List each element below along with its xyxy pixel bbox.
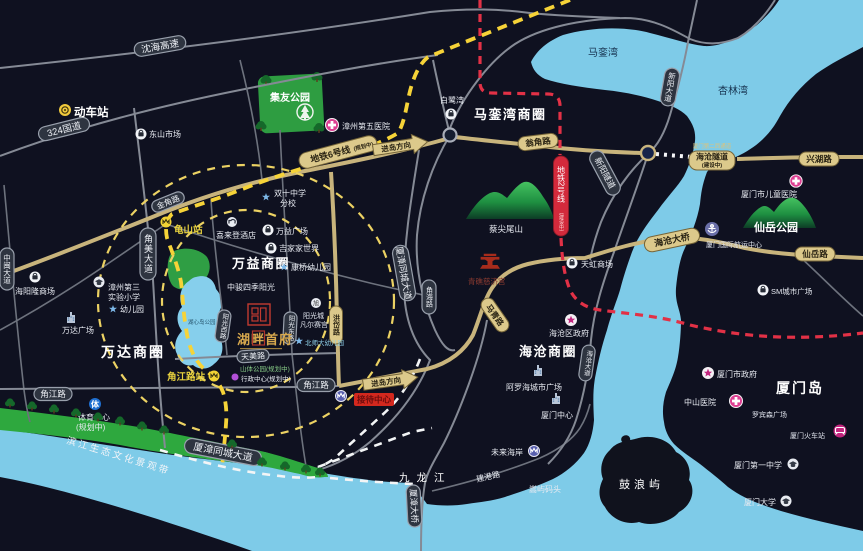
svg-text:厦门中心: 厦门中心: [541, 410, 573, 420]
svg-text:角美大道: 角美大道: [143, 233, 153, 274]
svg-text:漳州第三: 漳州第三: [108, 282, 140, 292]
svg-text:接待中心: 接待中心: [357, 395, 392, 405]
svg-text:厦门国际航运中心: 厦门国际航运中心: [706, 240, 762, 249]
svg-text:厦门火车站: 厦门火车站: [790, 431, 825, 440]
svg-text:厦漳大桥: 厦漳大桥: [408, 489, 420, 524]
svg-text:嵩屿码头: 嵩屿码头: [529, 484, 561, 494]
svg-text:东山市场: 东山市场: [149, 129, 181, 139]
svg-text:马銮湾: 马銮湾: [588, 46, 618, 59]
svg-text:罗宾森广场: 罗宾森广场: [752, 410, 787, 419]
svg-text:龟山站: 龟山站: [174, 224, 203, 236]
svg-text:阳光城: 阳光城: [303, 311, 324, 320]
svg-text:阿罗海城市广场: 阿罗海城市广场: [506, 382, 562, 392]
svg-text:厦门第二西通道: 厦门第二西通道: [693, 142, 732, 150]
svg-text:北师大幼儿园: 北师大幼儿园: [305, 338, 344, 347]
svg-text:角海路: 角海路: [426, 286, 434, 309]
svg-text:未来海岸: 未来海岸: [491, 447, 523, 457]
svg-text:旭: 旭: [313, 300, 319, 308]
svg-text:角江路: 角江路: [303, 380, 329, 390]
svg-text:仙岳路: 仙岳路: [802, 249, 828, 259]
svg-text:集友公园: 集友公园: [269, 91, 310, 104]
svg-text:康桥幼儿园: 康桥幼儿园: [291, 262, 331, 272]
svg-text:行政中心(规划中): 行政中心(规划中): [241, 374, 291, 383]
svg-text:分校: 分校: [280, 198, 296, 208]
svg-text:双十中学: 双十中学: [274, 188, 306, 198]
svg-text:中骏四季阳光: 中骏四季阳光: [227, 282, 275, 292]
svg-text:兴湖路: 兴湖路: [806, 154, 832, 164]
svg-text:角江路站: 角江路站: [167, 371, 206, 383]
svg-text:喜来登酒店: 喜来登酒店: [216, 230, 256, 240]
svg-text:厦门市儿童医院: 厦门市儿童医院: [741, 189, 797, 199]
svg-text:万益广场: 万益广场: [276, 226, 308, 236]
svg-text:动车站: 动车站: [74, 105, 109, 119]
svg-text:海沧商圈: 海沧商圈: [519, 344, 577, 359]
svg-text:吉家家世界: 吉家家世界: [279, 243, 319, 253]
svg-text:万达商圈: 万达商圈: [100, 344, 165, 360]
svg-text:厦门大学: 厦门大学: [744, 497, 776, 507]
svg-text:仙岳公园: 仙岳公园: [754, 220, 798, 234]
svg-text:蔡尖尾山: 蔡尖尾山: [489, 224, 523, 234]
svg-text:体: 体: [91, 399, 100, 409]
svg-text:九龙江: 九龙江: [399, 471, 452, 484]
svg-text:角江路: 角江路: [40, 389, 66, 399]
svg-text:青礁慈济宫: 青礁慈济宫: [468, 276, 506, 286]
svg-text:万达广场: 万达广场: [62, 325, 94, 335]
svg-text:实验小学: 实验小学: [108, 292, 140, 302]
svg-text:厦门第一中学: 厦门第一中学: [734, 460, 782, 470]
svg-text:天美路: 天美路: [241, 350, 266, 362]
svg-text:马銮湾商圈: 马銮湾商圈: [474, 107, 547, 122]
svg-text:地铁2号线: 地铁2号线: [557, 165, 566, 202]
svg-text:白鹭湾: 白鹭湾: [440, 95, 464, 105]
svg-text:鼓浪屿: 鼓浪屿: [619, 477, 664, 491]
svg-text:凡尔赛宫: 凡尔赛宫: [300, 320, 328, 329]
svg-text:厦门岛: 厦门岛: [776, 380, 824, 396]
svg-text:万益商圈: 万益商圈: [231, 256, 290, 271]
svg-text:厦门市政府: 厦门市政府: [717, 369, 757, 379]
svg-text:幼儿园: 幼儿园: [120, 304, 144, 314]
svg-text:海阳隆商场: 海阳隆商场: [15, 286, 55, 296]
svg-text:(建设中): (建设中): [558, 213, 564, 232]
svg-text:(规划中): (规划中): [76, 422, 106, 432]
svg-text:(建设中): (建设中): [702, 161, 722, 169]
svg-text:SM城市广场: SM城市广场: [771, 286, 813, 296]
svg-text:海沧区政府: 海沧区政府: [549, 328, 589, 338]
svg-text:中山医院: 中山医院: [684, 397, 716, 407]
svg-text:中闽大道: 中闽大道: [2, 253, 11, 285]
svg-text:湖心岛公园: 湖心岛公园: [188, 318, 216, 326]
svg-text:漳州第五医院: 漳州第五医院: [342, 121, 390, 131]
svg-text:山体公园(规划中): 山体公园(规划中): [240, 364, 290, 373]
svg-text:海沧隧道: 海沧隧道: [696, 152, 728, 162]
svg-text:天虹商场: 天虹商场: [581, 259, 613, 269]
svg-text:杏林湾: 杏林湾: [718, 84, 748, 97]
